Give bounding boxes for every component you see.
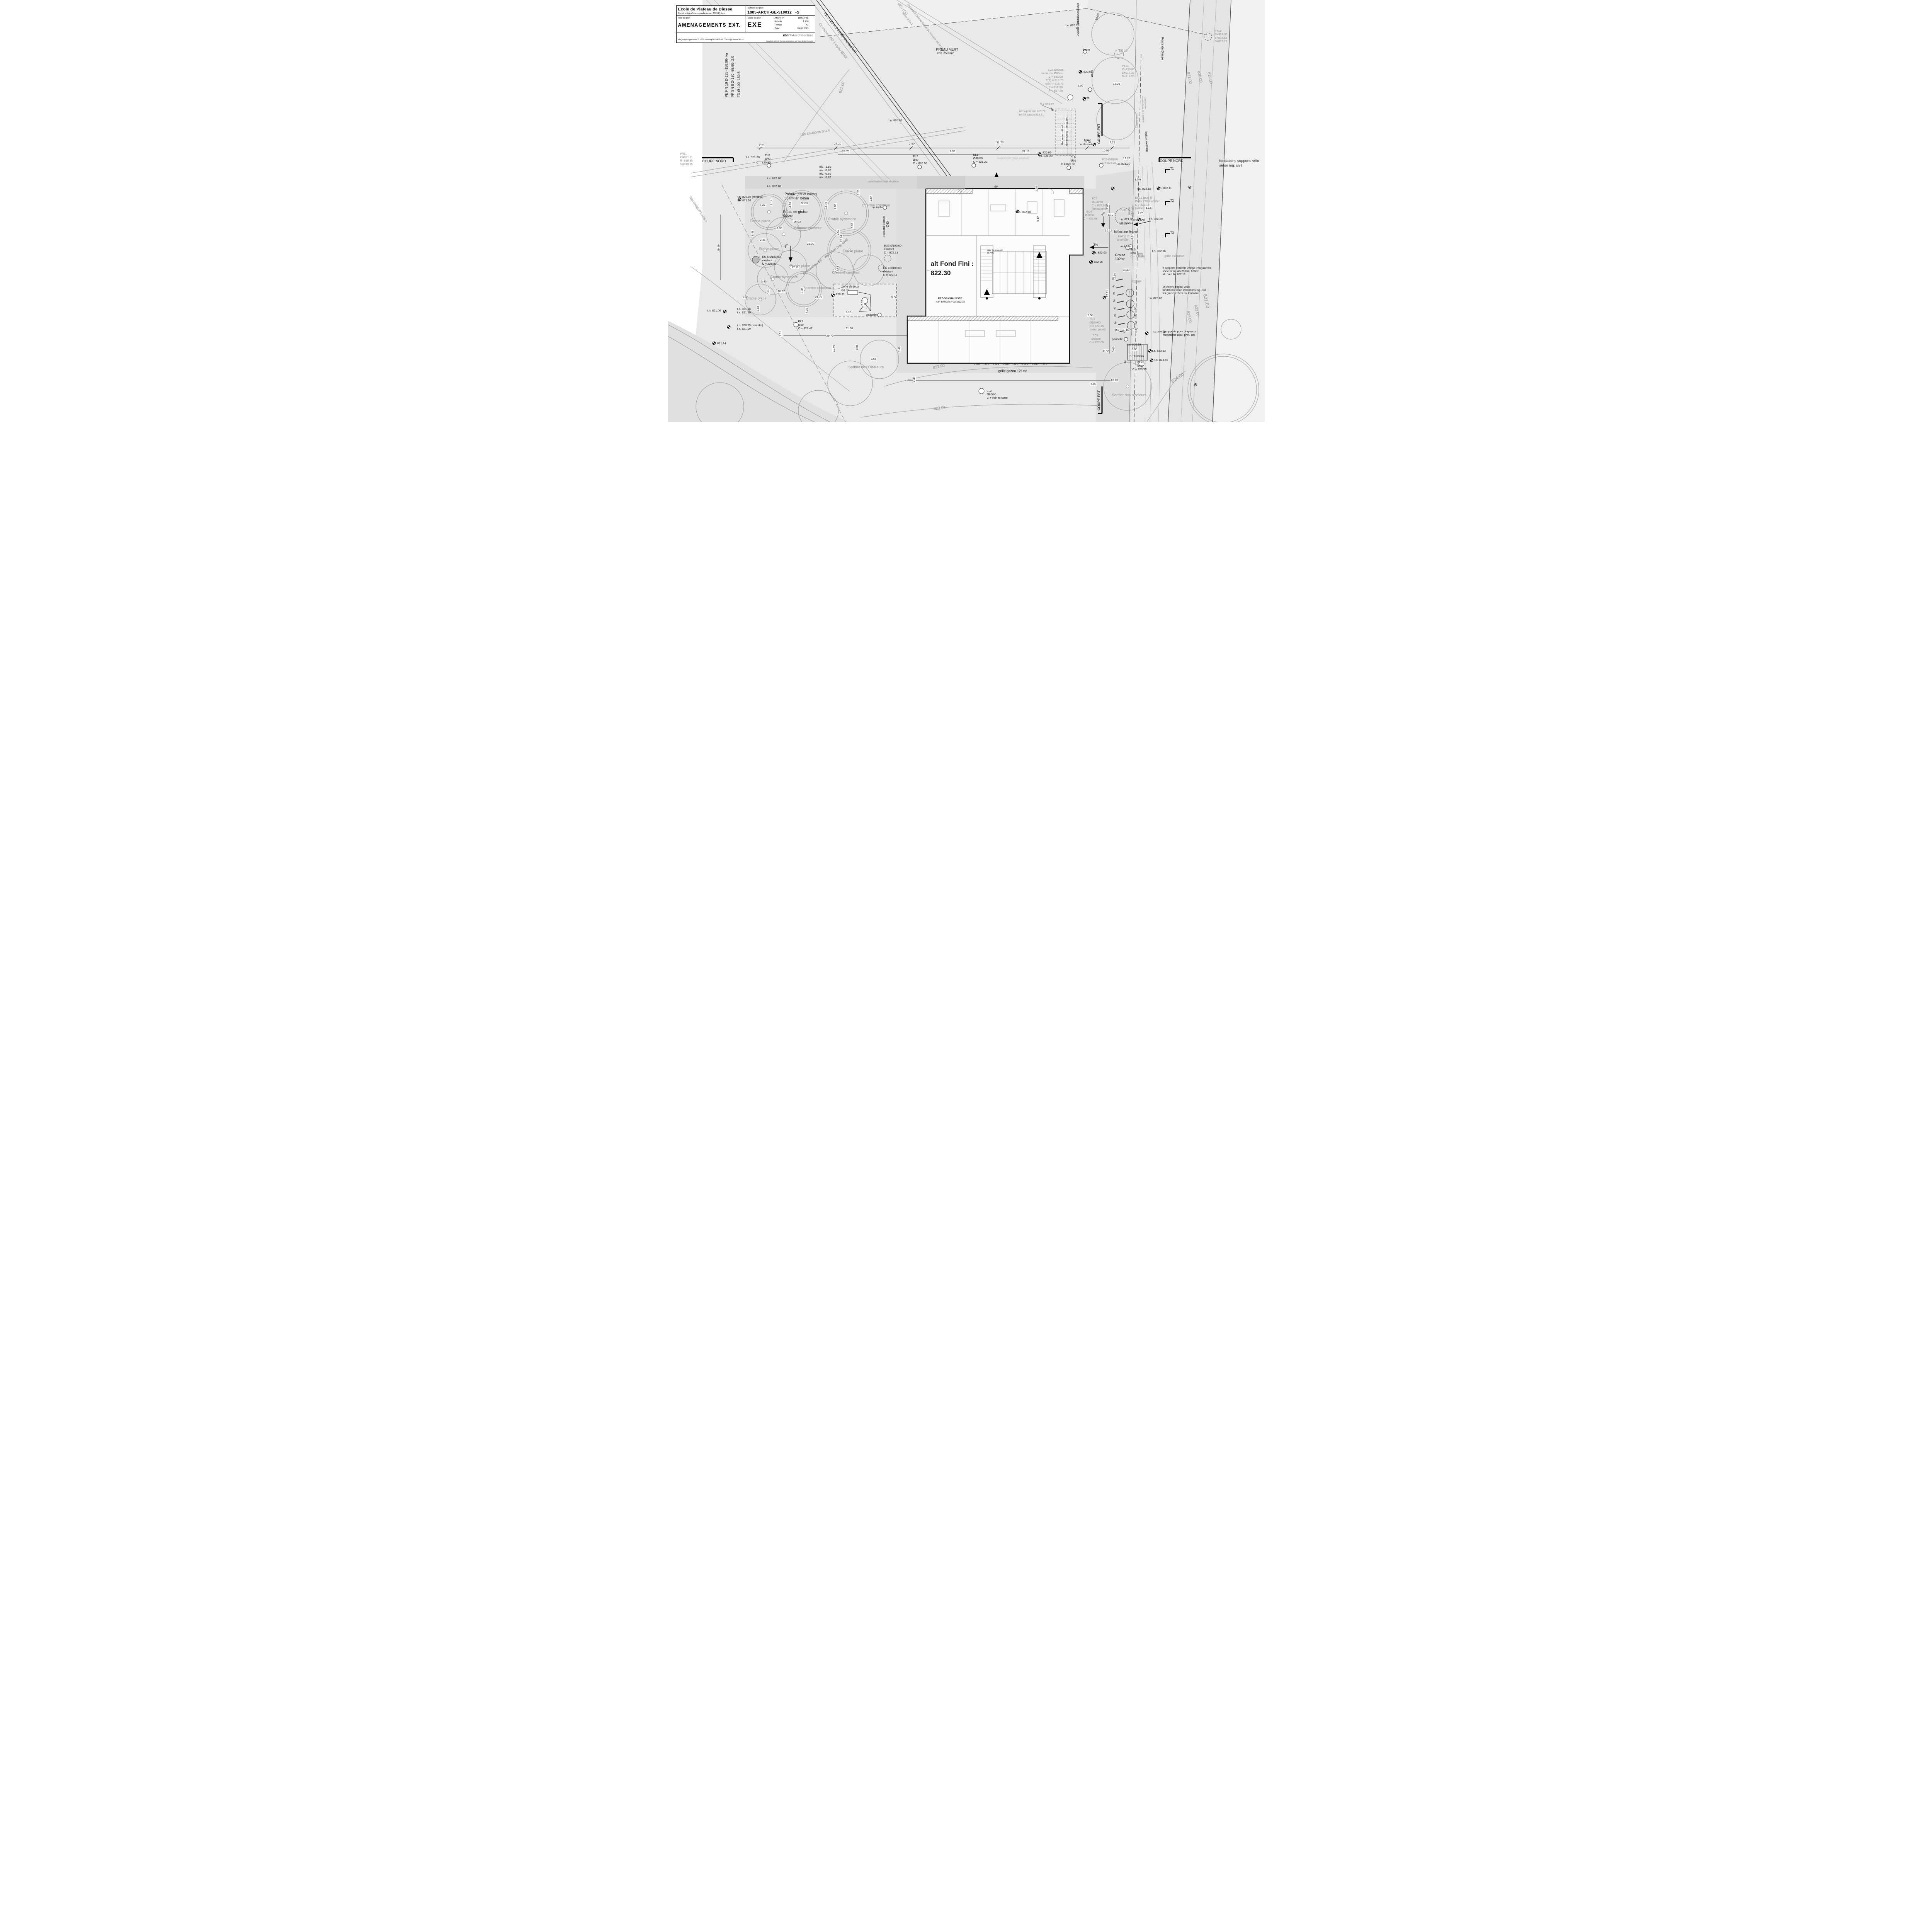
plan-label: F 02 R (974, 364, 980, 366)
plan-label: C=820.87 (1122, 68, 1135, 71)
plan-label: 3.12 (1037, 216, 1040, 222)
plan-label: EC1 (1090, 318, 1095, 321)
plan-label: Ø40 (765, 157, 770, 160)
plan-label: Ø80/60 (973, 157, 983, 160)
plan-title-label: Titre du plan (678, 17, 743, 19)
plan-label: TBN DN300/73.4/66.2 (688, 196, 707, 223)
plan-label: 27.20 (834, 142, 842, 145)
plan-label: COUPE EST (1097, 390, 1101, 410)
plan-label: Swisscom (déjà réalisé) (997, 157, 1029, 160)
plan-label: 8.48 (751, 230, 754, 237)
plan-label: 3% (1094, 243, 1098, 247)
plan-label: 15.7 m2 (987, 252, 995, 255)
plan-label: 10.97 (777, 290, 786, 293)
plan-label: 29.70 (842, 150, 850, 153)
plan-label: t.n. 822.66 (1152, 250, 1166, 253)
plan-label: C = 821.88 (1131, 255, 1145, 258)
plan-label: 2.40 (898, 346, 901, 352)
plan-label: alt. haut fini 822.18 (1163, 273, 1185, 276)
plan-label: grille gazon 121m² (998, 369, 1027, 373)
plan-label: Ø60 / 270 à vérifier (1135, 200, 1160, 203)
plan-label: Ø60 (1071, 159, 1076, 162)
plan-label: 3.14 (770, 199, 773, 206)
plan-label: C = 822.11 (883, 274, 897, 277)
plan-label: t.n. 820.95 (889, 119, 902, 122)
plan-number-label: Numéro de plan (748, 7, 813, 9)
plan-label: EC2 (1092, 197, 1098, 200)
plan-label: t.a. 821.20 (1117, 162, 1130, 165)
plan-label: Charme commun (862, 204, 890, 208)
logo-secondary: architecture (794, 33, 813, 37)
plan-label: 80 (1113, 299, 1116, 303)
plan-label: F 01 R (984, 364, 990, 366)
plan-label: fondations supports vélo (1219, 159, 1259, 163)
plan-label: P411 (680, 152, 687, 155)
status-value: EXE (748, 22, 772, 29)
plan-label: 15 étriers d'appui vélos (1163, 286, 1190, 289)
plan-label: Préau en groise (783, 210, 808, 214)
plan-label: fondations Ø80, prof. 1m (1163, 334, 1195, 337)
plan-label: t.a. 821.20 (1039, 155, 1053, 158)
plan-label: C=821.11 (680, 156, 693, 159)
plan-label: 3% (1100, 211, 1105, 217)
plan-label: EL8 (765, 154, 770, 157)
plan-label: t.n. 822.29 (1149, 218, 1163, 221)
plan-label: Groise (1115, 254, 1126, 257)
plan-label: t.n. 820.85 (remblai) (737, 324, 763, 327)
plan-label: t.a. 822.18 (1120, 221, 1133, 225)
plan-label: 821.00 (839, 81, 846, 94)
plan-label: (selon pente) (1090, 328, 1107, 331)
field-label: Affaire N° (775, 17, 784, 19)
plan-label: EL5 (1131, 248, 1136, 251)
plan-label: t.n. 821.30 (1120, 218, 1133, 221)
plan-label: 567m² en béton (785, 197, 809, 200)
plan-label: EL6 (1071, 156, 1076, 159)
plan-label: Érable plane (750, 220, 770, 223)
plan-label: 7.02 (861, 299, 864, 306)
plan-label: à déterminer (1143, 97, 1146, 109)
plan-label: fondations selon indications ing. civil (1163, 289, 1206, 292)
plan-label: EU 4 Ø100/60 (883, 267, 902, 270)
plan-label: F 01 R (1022, 364, 1028, 366)
plan-label: EC5 Ø80cm, (1048, 68, 1065, 71)
plan-label: 5.00 (1112, 346, 1115, 352)
plan-label: 820.00 (1196, 71, 1202, 83)
plan-label: 80 (1112, 285, 1116, 288)
plan-label: Puit 2 ? (1118, 235, 1129, 238)
plan-label: P414 (1122, 65, 1129, 68)
plan-label: t.a. 822.18 (1128, 343, 1141, 346)
plan-label: 822.00 (1193, 305, 1199, 317)
plan-label: S=816.75 (1215, 40, 1227, 43)
plan-label: t.a. 822.10 (1017, 211, 1031, 214)
plan-label: 3% (784, 243, 789, 248)
plan-label: 29.50 (717, 244, 720, 252)
plan-label: 2.50 (1085, 141, 1092, 144)
plan-label: 9.35 (949, 150, 956, 153)
plan-label: 1.50 (1134, 314, 1138, 319)
plan-label: t.a. 822.18 (1138, 187, 1151, 191)
plan-label: 11.46 (832, 345, 835, 352)
plan-label: Ø100/60 (1090, 321, 1101, 324)
plan-label: TBN DN400/88.8/11.6 (800, 129, 830, 137)
plan-label: 2.64 (869, 195, 872, 202)
plan-label: 21.13 (1022, 150, 1030, 153)
plan-label: selon ing. civil (1219, 164, 1242, 168)
plan-label: 5.00 (891, 296, 898, 299)
plan-label: 80 (1113, 292, 1116, 295)
plan-label: C = 822.15 (1090, 325, 1104, 328)
plan-label: 16.03 (793, 220, 801, 223)
plan-label: EL4 (1138, 361, 1143, 364)
plan-label: niv. -0.20 (820, 176, 831, 179)
plan-label: t.n. 821.06 (707, 309, 721, 312)
plan-label: niv. -0.50 (820, 172, 831, 175)
plan-label: 824.00 (1170, 372, 1185, 384)
plan-label: 9.70 (1107, 213, 1114, 216)
plan-label: t.a. 822.03 (1093, 251, 1107, 254)
plan-label: 822.30 (930, 270, 951, 276)
plan-label: t.a. 821.20 (746, 156, 760, 159)
plan-label: Sorbier des oiseleurs (1112, 393, 1146, 397)
plan-label: 3.00 (1131, 348, 1138, 351)
plan-label: t.a. 821.58 (738, 199, 751, 202)
plan-label: Érable plane (759, 247, 779, 251)
plan-label: S = 818.60 (1049, 86, 1063, 89)
plan-label: Route de Diesse (1161, 37, 1164, 60)
plan-label: Érable sycomore (770, 276, 798, 279)
plan-label: C = 820.90 (913, 162, 927, 165)
plan-label: 566m² (783, 214, 793, 218)
plan-label: Ø100/60 (1092, 201, 1103, 204)
plan-label: 1.50 (1135, 328, 1139, 333)
plan-label: F 01 R (1042, 364, 1048, 366)
plan-label: 10.12 (1105, 229, 1113, 232)
plan-label: t.n. 821.14 (713, 342, 726, 345)
plan-label: niv. -0.80 (820, 169, 831, 172)
plan-label: 819.00 (1206, 72, 1213, 84)
plan-label: 821.00 (1186, 72, 1192, 84)
plan-number: 1805-ARCH-GE-510012 (748, 10, 792, 15)
plan-label: t.n. 820.91 (831, 293, 845, 296)
plan-label: 9.70 (1103, 349, 1109, 352)
plan-label: 12.29 (1113, 82, 1121, 85)
plan-label: 9.02 (851, 222, 854, 229)
copyright-note: Copyright 2023 © riforma architecture sa… (766, 40, 813, 42)
plan-labels-layer: PE PN 10 Ø 125 -158.90- vaPP SN 8 Ø 150 … (668, 0, 1265, 422)
plan-label: 13.10 (1111, 379, 1119, 382)
plan-label: T2 (1170, 199, 1174, 202)
plan-label: 8.06 (855, 344, 859, 351)
plan-label: Ø40 (913, 158, 918, 162)
plan-label: REZ-DE-CHAUSSEE (938, 298, 962, 300)
plan-label: poubelle (1112, 338, 1123, 341)
plan-label: 132m² (1115, 257, 1125, 261)
plan-label: 12.23 (1123, 157, 1131, 160)
plan-label: tapis de propreté (987, 250, 1003, 252)
plan-label: 2.52 (837, 229, 840, 236)
plan-label: niv sup bassin 819.72 (1019, 110, 1046, 113)
plan-label: 10.56 (1102, 149, 1110, 152)
plan-label: 22.03 (800, 202, 808, 205)
plan-label: 80 (1112, 277, 1115, 281)
plan-label: C = 822.08 (1083, 217, 1098, 220)
plan-label: EL2 (987, 390, 992, 393)
plan-label: Rétention 46m³ (1061, 125, 1064, 145)
plan-label: 823.00 (934, 406, 946, 411)
plan-label: FD Ø 100 -159.5 (737, 71, 741, 97)
status-label: Statut du plan (748, 17, 772, 19)
plan-label: Ø40 (1138, 364, 1143, 368)
logo-primary: riforma (783, 33, 794, 37)
field-label: Format (775, 24, 782, 26)
field-label: Date (775, 27, 779, 30)
plan-label: 29.70 (826, 334, 834, 337)
plan-label: EC6 Ø80/60 (1102, 158, 1118, 161)
plan-label: T1 (1170, 167, 1174, 170)
plan-label: EU 5 Ø100/60 (762, 255, 781, 259)
plan-label: 4040 (1123, 269, 1130, 272)
plan-label: F 02 R (1013, 364, 1019, 366)
plan-label: C = 820.90 (1061, 163, 1075, 166)
plan-label: 24.70 (815, 296, 823, 299)
plan-label: t.a. 823.53 (1152, 349, 1166, 352)
plan-label: 3.13 (1145, 206, 1152, 209)
plan-label: E=817.32 (1122, 71, 1134, 75)
plan-label: alt Fond Fini : (930, 260, 974, 267)
plan-label: N.F. ±0.00cm = alt. 822.30 (936, 301, 965, 304)
plan-label: socle béton 40x210cm, h20cm (1163, 270, 1199, 273)
plan-label: 21.20 (807, 242, 815, 245)
plan-label: couvercle Ø60cm (1041, 72, 1063, 75)
plan-label: PREAU VERT (936, 48, 958, 51)
plan-label: 8.85 (776, 227, 783, 230)
plan-label: C = 821.20 (973, 160, 988, 163)
plan-label: 7.03 (1106, 203, 1109, 209)
plan-label: C = 821.20 (1102, 162, 1116, 165)
plan-label: Préaux (est et ouest) (785, 192, 817, 196)
office-address: rue jacques gachoud 3 1700 fribourg 026 … (678, 39, 743, 41)
plan-label: COUPE NORD (1160, 159, 1184, 163)
plan-label: t.n. 820.85 (remblai) (738, 196, 764, 199)
plan-label: 50 (1116, 328, 1120, 332)
riforma-logo: riformaarchitecture (783, 33, 813, 37)
plan-label: existant (762, 259, 772, 262)
plan-label: 27.21 (1106, 289, 1109, 298)
plan-label: limite parcelle (1135, 114, 1138, 128)
plan-label: asphalte (1131, 206, 1134, 217)
plan-label: Ø60cm (1092, 337, 1101, 340)
plan-label: P415 (1215, 29, 1222, 32)
plan-label: existant (883, 270, 893, 273)
plan-label: Ø80/60 (987, 393, 997, 396)
site-plan-sheet: PE PN 10 Ø 125 -158.90- vaPP SN 8 Ø 150 … (668, 0, 1265, 422)
plan-label: 4.69 (789, 201, 792, 208)
plan-label: 1.20 (1035, 185, 1038, 192)
plan-label: t.n. 822.11 (1158, 187, 1172, 190)
plan-label: env. 2500m² (937, 52, 954, 55)
plan-label: raccord pompe (883, 216, 886, 237)
plan-label: Ø40 (1131, 252, 1136, 255)
plan-label: EL7 (913, 155, 918, 158)
plan-label: Érable sycomore (828, 218, 856, 221)
field-value: 1:200 (803, 20, 809, 23)
plan-label: fini groise +10cm fini fondation (1163, 292, 1199, 295)
plan-label: T3 (1170, 231, 1174, 235)
plan-label: ⊗ (1188, 185, 1192, 190)
plan-label: 823.00 (1185, 311, 1192, 323)
plan-label: C = 823.20 (1133, 368, 1147, 371)
plan-label: Ø60 (798, 323, 804, 327)
plan-label: Érable plane (843, 250, 863, 254)
plan-label: zone de jeux (842, 285, 859, 288)
plan-label: F 01 R (1003, 364, 1009, 366)
plan-label: EC4 (1087, 210, 1092, 213)
plan-label: à vérifier (1117, 238, 1129, 242)
plan-label: 2.25 (857, 189, 860, 196)
plan-label: PE PN 10 Ø 125 -158.90- va (725, 53, 728, 97)
plan-label: Charme commun (803, 286, 831, 290)
plan-label: C=818.35 (1215, 33, 1228, 36)
plan-label: 4.78 (825, 201, 828, 208)
plan-label: 1.50 (1134, 307, 1138, 312)
plan-index: -S (795, 10, 799, 15)
plan-label: t.a. 821.18 (737, 308, 751, 311)
plan-label: 2.25 (1138, 212, 1144, 215)
plan-label: grille existante (1165, 255, 1184, 258)
plan-label: borne (1083, 97, 1090, 99)
plan-label: 62 m² (1133, 280, 1141, 283)
plan-label: 3.43 (761, 280, 767, 283)
plan-label: 80 (1114, 307, 1117, 310)
field-value: 09.05.2023 (797, 27, 808, 30)
plan-label: EL1 (973, 153, 978, 157)
plan-label: t.n. 823.41 (1153, 331, 1167, 334)
plan-label: E=818.35 (680, 159, 693, 162)
plan-label: 2 supports trotinette velopa PenguinParc (1163, 267, 1211, 270)
plan-label: 3.64 (760, 204, 766, 207)
plan-label: S=818.35 (680, 163, 693, 166)
plan-label: borne (1083, 49, 1090, 51)
plan-label: S=817.25 (1122, 75, 1134, 78)
plan-label: niv. -1.10 (820, 165, 831, 168)
field-value: 1805_PRE (798, 17, 808, 19)
plan-label: F 02 R (993, 364, 999, 366)
plan-label: EC 10 (1119, 49, 1128, 53)
plan-label: 3.27 (1131, 234, 1134, 240)
field-value: A2 (806, 24, 808, 26)
plan-label: niv inf bassin 818.71 (1019, 114, 1044, 116)
plan-label: 7.65 (871, 357, 877, 361)
plan-label: COUPE EST (1097, 124, 1101, 144)
plan-label: 1.51 (779, 330, 782, 337)
plan-label: béton (1128, 207, 1131, 215)
plan-label: Conduite CAD 1 tuyau Ø182 (818, 22, 847, 59)
plan-label: t.a. 823.06 (1149, 297, 1162, 300)
plan-label: C = 821.00 (1049, 75, 1063, 78)
plan-label: env. 12% (1133, 219, 1146, 222)
plan-title: AMENAGEMENTS EXT. (678, 22, 743, 28)
plan-label: t.n. 820.86 (1038, 151, 1051, 154)
plan-label: 821.00 (1202, 294, 1210, 308)
plan-label: F = 817.60 (1049, 89, 1063, 92)
plan-label: 21.60 (845, 327, 854, 330)
plan-label: Ø60cm (1085, 214, 1095, 217)
plan-label: Charme commun (832, 271, 861, 275)
plan-label: dimensions : 4mx12m (1065, 117, 1068, 146)
plan-label: 4 supports pour drapeaux (1163, 330, 1196, 333)
plan-label: 2.84 (757, 305, 760, 312)
plan-label: poubelle (1120, 245, 1131, 248)
plan-label: t.n. 823.69 (1155, 359, 1168, 362)
plan-label: COUPE NORD (702, 160, 726, 163)
plan-label: 10.00 (1090, 70, 1094, 77)
project-subtitle: Construction d'une nouvelle école, 2515 … (678, 12, 743, 15)
plan-label: 80 (1114, 314, 1117, 317)
plan-label: 7.31 (767, 289, 770, 295)
plan-label: 84 (1124, 361, 1127, 363)
plan-label: C = 822.13 (884, 251, 898, 254)
plan-label: boîtes aux lettres (1114, 230, 1138, 233)
plan-label: 1.80 (834, 203, 837, 210)
plan-label: E(R) = 818.70 (1046, 82, 1064, 85)
plan-label: Puit1 (1120, 209, 1127, 212)
plan-label: Charme commun (794, 226, 823, 230)
plan-label: Ø40 (886, 221, 889, 227)
plan-label: C = 822.08 (1090, 341, 1104, 344)
plan-label: C = 821.30 (762, 262, 777, 265)
plan-label: C = voir existant (987, 396, 1008, 400)
plan-label: t.a. 821.29 (737, 311, 751, 314)
plan-label: PP SN 8 Ø 150 -55.60- 2.0 (731, 56, 735, 97)
project-title: Ecole de Plateau de Diesse (678, 7, 743, 12)
plan-label: existant (884, 248, 894, 251)
plan-label: 9.35 (801, 287, 804, 294)
plan-label: Érable plane (746, 297, 767, 301)
plan-label: t.n. 820.75 (1066, 24, 1079, 27)
plan-label: E=816.82 (1215, 36, 1227, 39)
plan-label: C = 820.90 (757, 161, 771, 164)
plan-label: nouvelle limite de la parcelle (1141, 96, 1144, 123)
plan-label: cheminement - groise (1076, 3, 1080, 37)
plan-label: EC12 (puit 1) (1135, 196, 1152, 199)
plan-label: poubelle (866, 313, 877, 316)
plan-label: C = 822.15 (1092, 204, 1106, 207)
plan-label: 2.50 (909, 142, 915, 145)
plan-label: S = 818.75 (1040, 103, 1054, 106)
plan-label: t.a. 822.18 (767, 185, 781, 188)
plan-label: C = 821.47 (798, 327, 813, 330)
plan-label: 31.73 (996, 141, 1004, 144)
field-label: Echelle (775, 20, 782, 23)
plan-label: 1.50 (1134, 321, 1138, 326)
plan-label: ⊗ (1194, 383, 1197, 387)
plan-label: trottoir existant (1145, 131, 1148, 152)
plan-label: 822.00 (933, 364, 945, 370)
plan-label: EU3 Ø100/60 (884, 244, 901, 247)
plan-label: 80 (1114, 322, 1117, 325)
plan-label: E(2) = 819.70 (1046, 79, 1064, 82)
plan-label: F 02 R (1032, 364, 1038, 366)
plan-label: 2.51 (759, 144, 765, 147)
plan-label: 17.11 (791, 266, 799, 269)
plan-label: 7.21 (1109, 141, 1116, 144)
plan-label: 10.00 (1095, 13, 1100, 21)
plan-label: 4.32 (805, 307, 808, 314)
plan-label: t.a. 822.05 (1089, 260, 1103, 264)
plan-label: h : 9x15cm (1130, 355, 1144, 358)
